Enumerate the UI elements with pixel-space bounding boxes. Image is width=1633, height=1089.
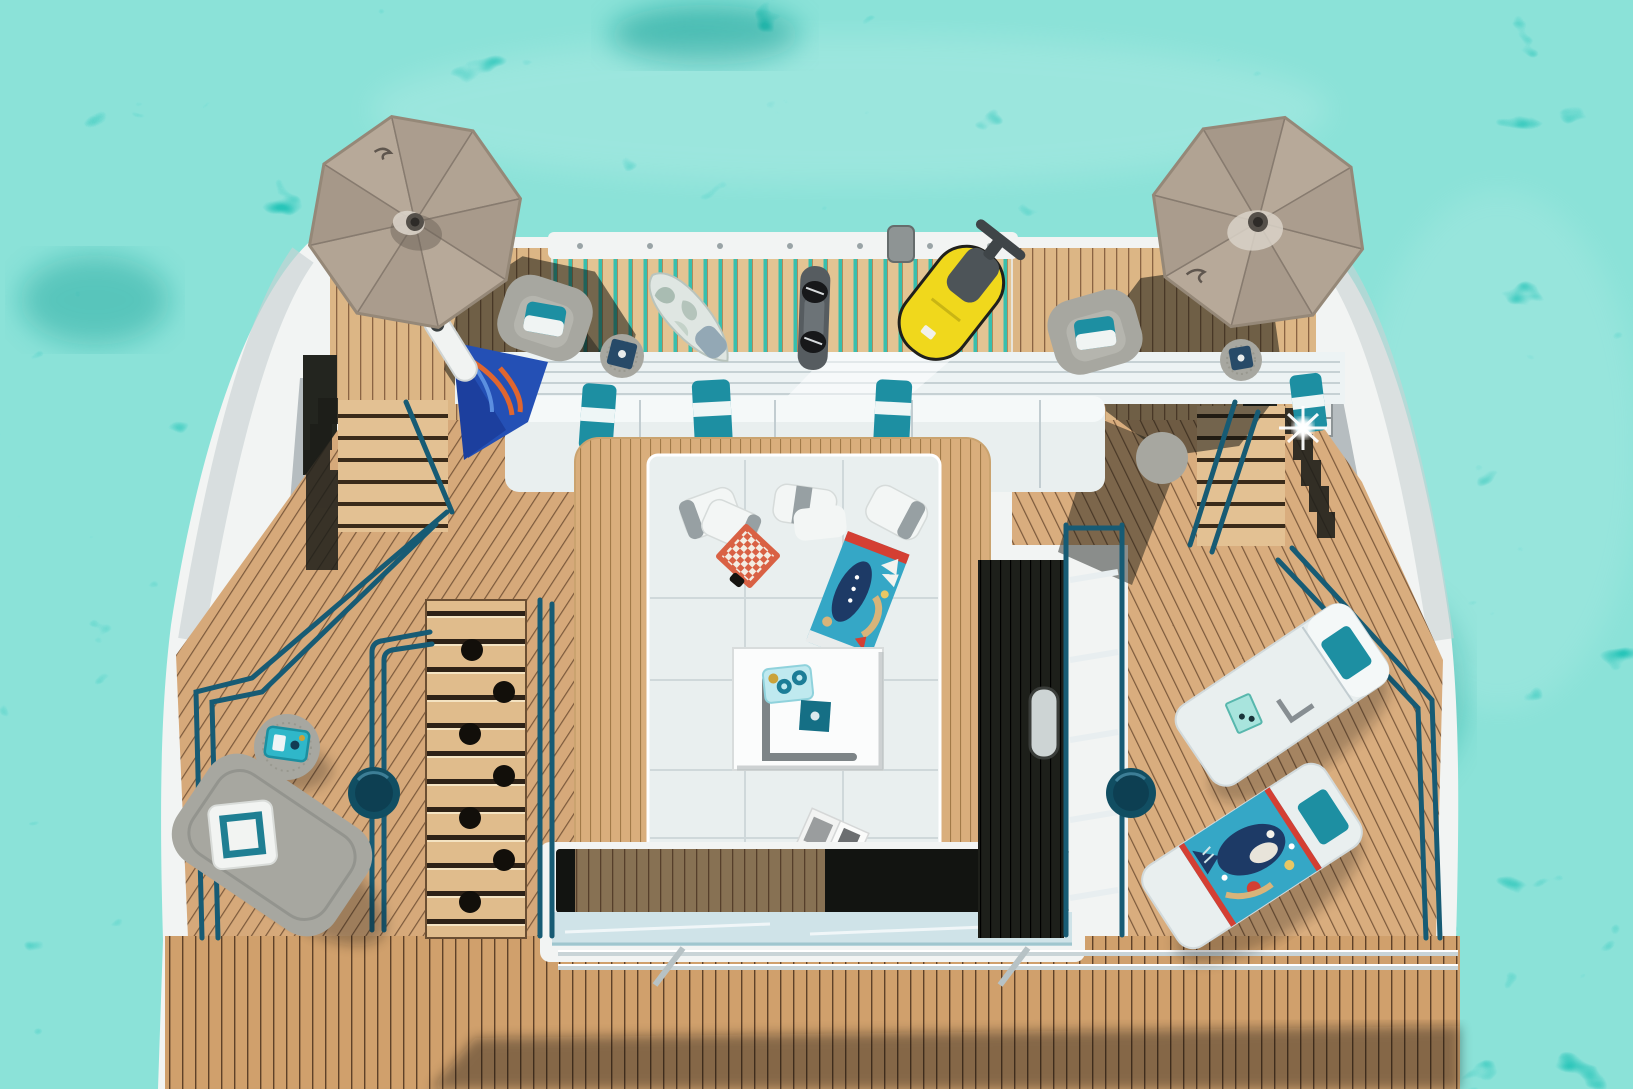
coffee-table	[733, 648, 883, 770]
scene-canvas: Top-down aerial photograph of a yacht af…	[0, 0, 1633, 1089]
small-gray-case	[888, 226, 914, 262]
sofa-end-pouf	[1136, 432, 1188, 484]
wakeboard	[797, 266, 831, 371]
reef-shadow	[20, 255, 170, 345]
stairwell-starboard	[978, 560, 1064, 938]
drinks-tray	[762, 665, 813, 704]
stairwell-handrail-cap	[1030, 688, 1058, 758]
yacht-aerial-photo: Top-down aerial photograph of a yacht af…	[0, 0, 1633, 1089]
lounge	[575, 438, 990, 910]
central-stairs-port	[426, 600, 526, 938]
pouf-starboard-top	[1220, 339, 1262, 381]
teal-tray	[264, 726, 310, 762]
side-table-starboard	[1106, 768, 1156, 818]
teal-book	[799, 700, 831, 732]
pouf-port-top	[600, 334, 644, 378]
daybed-pillow	[207, 800, 277, 870]
side-table-port	[348, 767, 400, 819]
